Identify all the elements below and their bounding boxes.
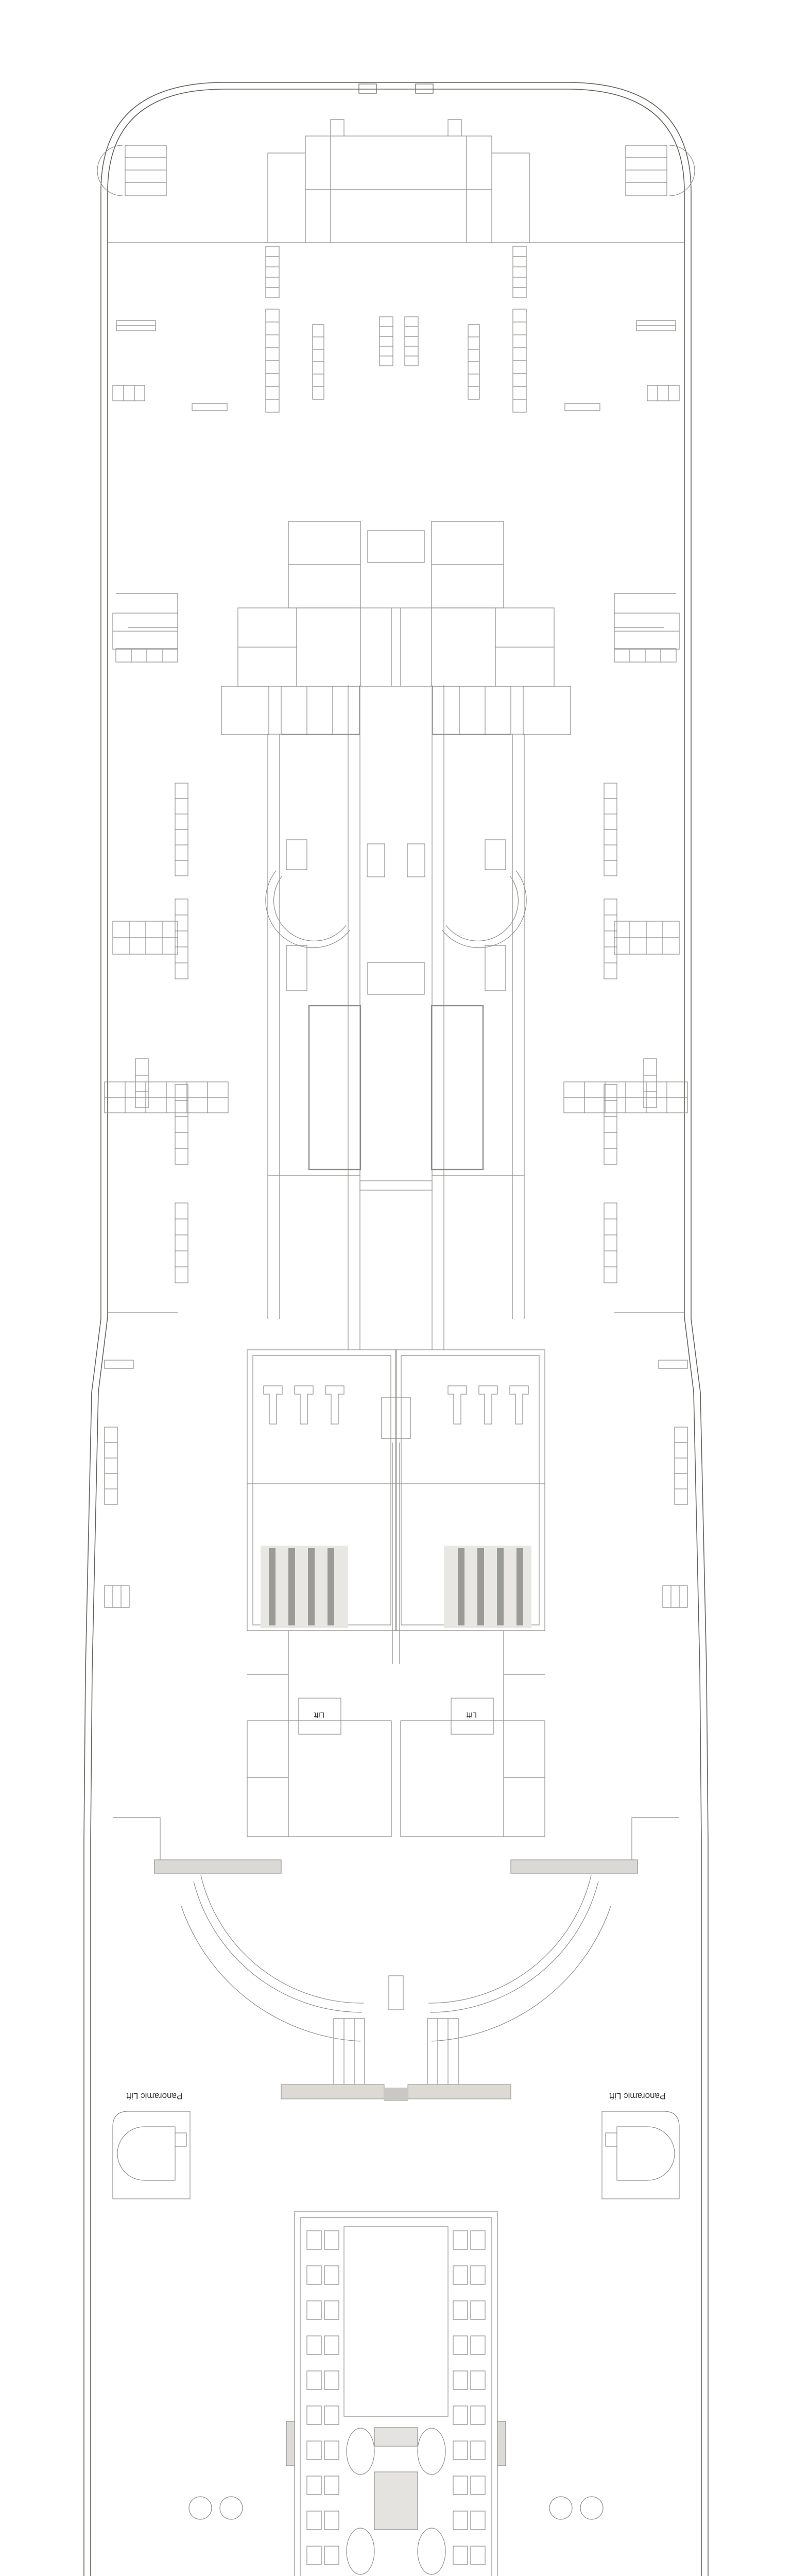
deck-plan: Panoramic Lift Panoramic Lift Lift Lift … [0, 0, 792, 2576]
cabin-layer: 15026▲15024▲15022▲15020▲15018▲15016▲1501… [0, 0, 792, 2576]
